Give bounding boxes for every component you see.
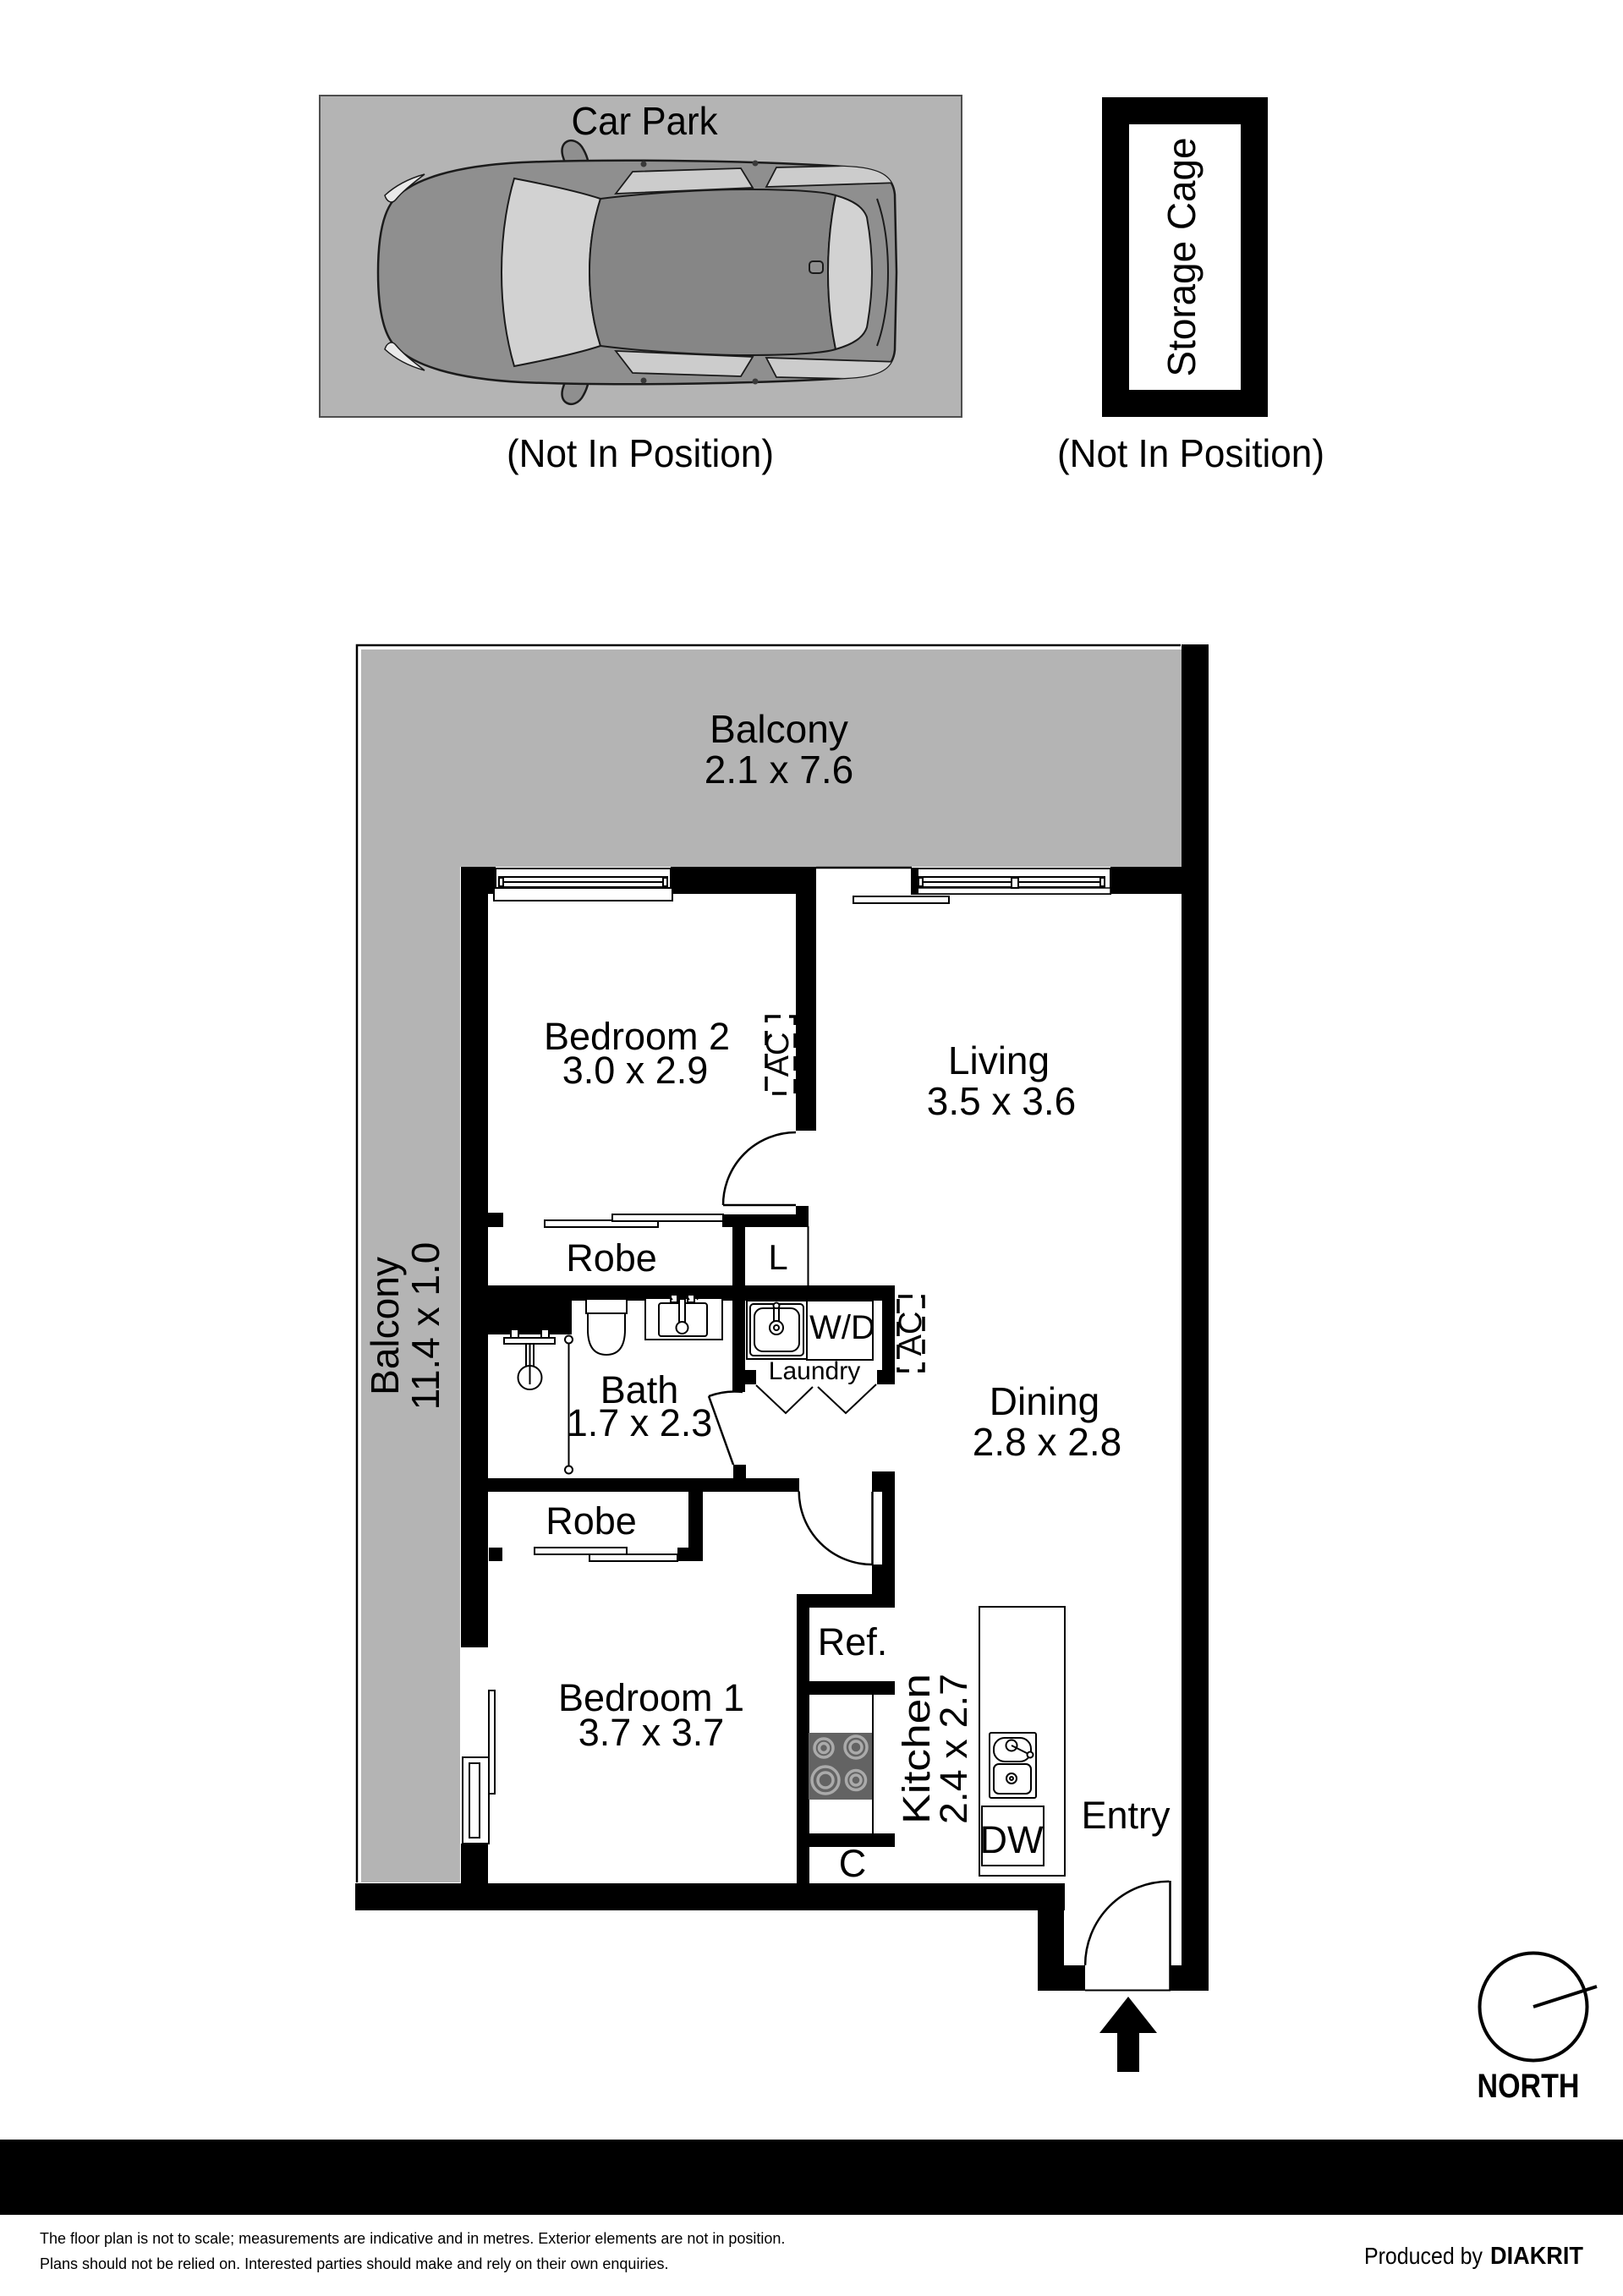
svg-text:Entry: Entry <box>1081 1794 1171 1837</box>
svg-text:1.7 x 2.3: 1.7 x 2.3 <box>567 1401 713 1444</box>
svg-text:3.7 x 3.7: 3.7 x 3.7 <box>578 1711 725 1754</box>
svg-text:Storage Cage: Storage Cage <box>1160 138 1204 377</box>
svg-text:L: L <box>768 1237 787 1277</box>
svg-text:Ref.: Ref. <box>818 1620 888 1663</box>
svg-text:The floor plan is not to scale: The floor plan is not to scale; measurem… <box>40 2230 785 2247</box>
svg-text:Produced by: Produced by <box>1364 2243 1483 2269</box>
svg-text:3.0 x 2.9: 3.0 x 2.9 <box>562 1049 709 1092</box>
svg-text:11.4 x 1.0: 11.4 x 1.0 <box>403 1242 447 1411</box>
svg-text:(Not In Position): (Not In Position) <box>1057 431 1324 475</box>
svg-text:2.4 x 2.7: 2.4 x 2.7 <box>932 1674 975 1824</box>
svg-text:Plans should not be relied on.: Plans should not be relied on. Intereste… <box>40 2255 668 2272</box>
svg-text:Car Park: Car Park <box>572 99 719 143</box>
svg-text:(Not In Position): (Not In Position) <box>507 431 774 475</box>
svg-text:Laundry: Laundry <box>769 1357 860 1385</box>
svg-text:W/D: W/D <box>809 1309 875 1346</box>
svg-text:DW: DW <box>980 1818 1044 1861</box>
svg-text:AC: AC <box>760 1033 796 1077</box>
svg-text:Dining: Dining <box>990 1379 1099 1423</box>
svg-text:Robe: Robe <box>566 1236 657 1280</box>
svg-text:AC: AC <box>893 1312 929 1356</box>
svg-text:Living: Living <box>948 1038 1050 1082</box>
svg-text:2.1 x 7.6: 2.1 x 7.6 <box>705 748 853 792</box>
svg-text:3.5 x 3.6: 3.5 x 3.6 <box>927 1079 1076 1123</box>
svg-text:NORTH: NORTH <box>1478 2068 1580 2105</box>
svg-text:DIAKRIT: DIAKRIT <box>1490 2243 1583 2270</box>
svg-text:Balcony: Balcony <box>363 1257 407 1395</box>
svg-text:C: C <box>839 1842 867 1885</box>
svg-text:Robe: Robe <box>546 1499 637 1543</box>
svg-text:2.8 x 2.8: 2.8 x 2.8 <box>973 1420 1121 1464</box>
svg-text:Balcony: Balcony <box>710 707 848 751</box>
